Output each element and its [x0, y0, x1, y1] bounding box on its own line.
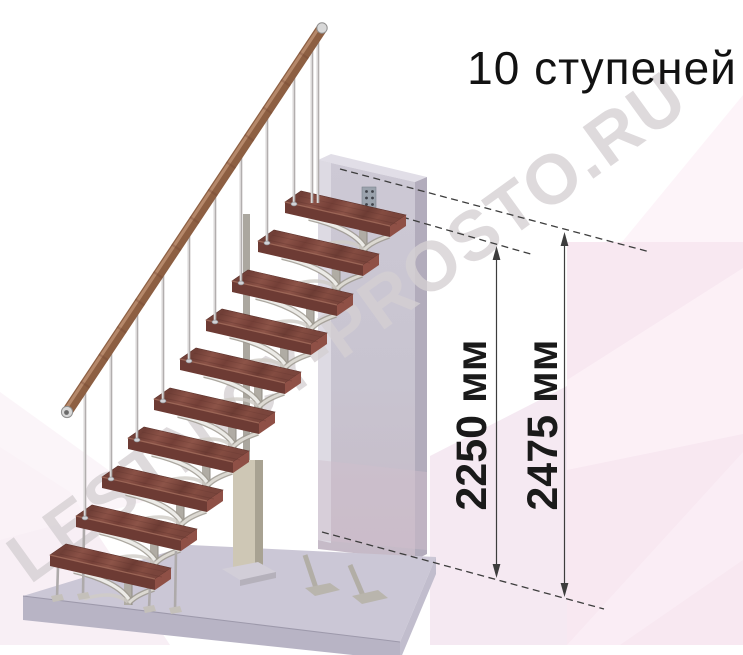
- staircase-diagram: LESTNICY-PROSTO.RU 2250 мм 2475 мм: [0, 0, 743, 655]
- handrail-top-cap: [317, 23, 327, 33]
- page-title: 10 ступеней: [467, 42, 737, 94]
- handrail-end-cap-core: [64, 410, 69, 415]
- baluster-base-cap: [108, 477, 114, 481]
- scene: LESTNICY-PROSTO.RU 2250 мм 2475 мм: [0, 0, 743, 655]
- baluster-base-cap: [134, 438, 140, 442]
- baluster-base-cap: [264, 241, 270, 245]
- baluster-base-cap: [212, 320, 218, 324]
- baluster-base-cap: [160, 399, 166, 403]
- dimension-label-2250: 2250 мм: [448, 339, 496, 510]
- dimension-label-2475: 2475 мм: [519, 339, 567, 510]
- baluster-base-cap: [82, 516, 88, 520]
- baluster-base-cap: [291, 202, 297, 206]
- wall-lower-tint: [318, 460, 427, 550]
- baluster-base-cap: [238, 281, 244, 285]
- baluster-base-cap: [186, 359, 192, 363]
